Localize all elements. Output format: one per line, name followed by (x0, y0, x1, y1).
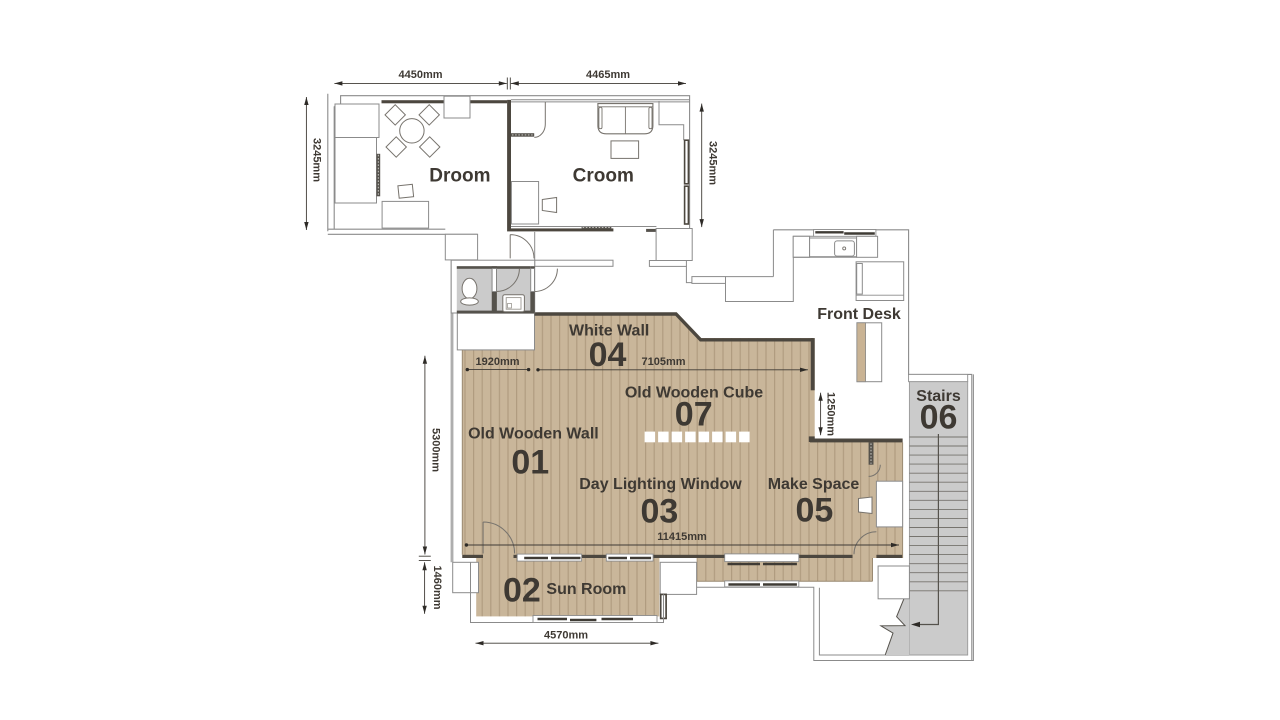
svg-text:05: 05 (795, 492, 833, 530)
svg-text:Day Lighting Window: Day Lighting Window (579, 476, 742, 493)
svg-text:03: 03 (640, 493, 678, 531)
svg-text:4465mm: 4465mm (586, 69, 630, 81)
svg-text:4570mm: 4570mm (544, 630, 588, 642)
svg-text:5300mm: 5300mm (429, 428, 441, 472)
svg-text:04: 04 (589, 336, 627, 374)
svg-text:Old Wooden Wall: Old Wooden Wall (468, 426, 599, 443)
svg-text:02: 02 (503, 572, 541, 610)
svg-text:1920mm: 1920mm (475, 356, 519, 368)
svg-text:06: 06 (920, 399, 958, 437)
svg-text:Make Space: Make Space (768, 476, 860, 493)
svg-text:4450mm: 4450mm (398, 69, 442, 81)
svg-text:Croom: Croom (573, 166, 634, 187)
svg-text:Front Desk: Front Desk (817, 306, 901, 323)
svg-text:07: 07 (675, 396, 713, 434)
svg-text:11415mm: 11415mm (657, 531, 707, 543)
svg-text:01: 01 (511, 444, 549, 482)
svg-text:3245mm: 3245mm (310, 138, 322, 182)
svg-text:1460mm: 1460mm (431, 565, 443, 609)
svg-text:1250mm: 1250mm (825, 392, 837, 436)
svg-text:3245mm: 3245mm (707, 141, 719, 185)
svg-text:7105mm: 7105mm (641, 356, 685, 368)
svg-text:Sun Room: Sun Room (546, 581, 626, 598)
svg-text:Droom: Droom (429, 166, 490, 187)
